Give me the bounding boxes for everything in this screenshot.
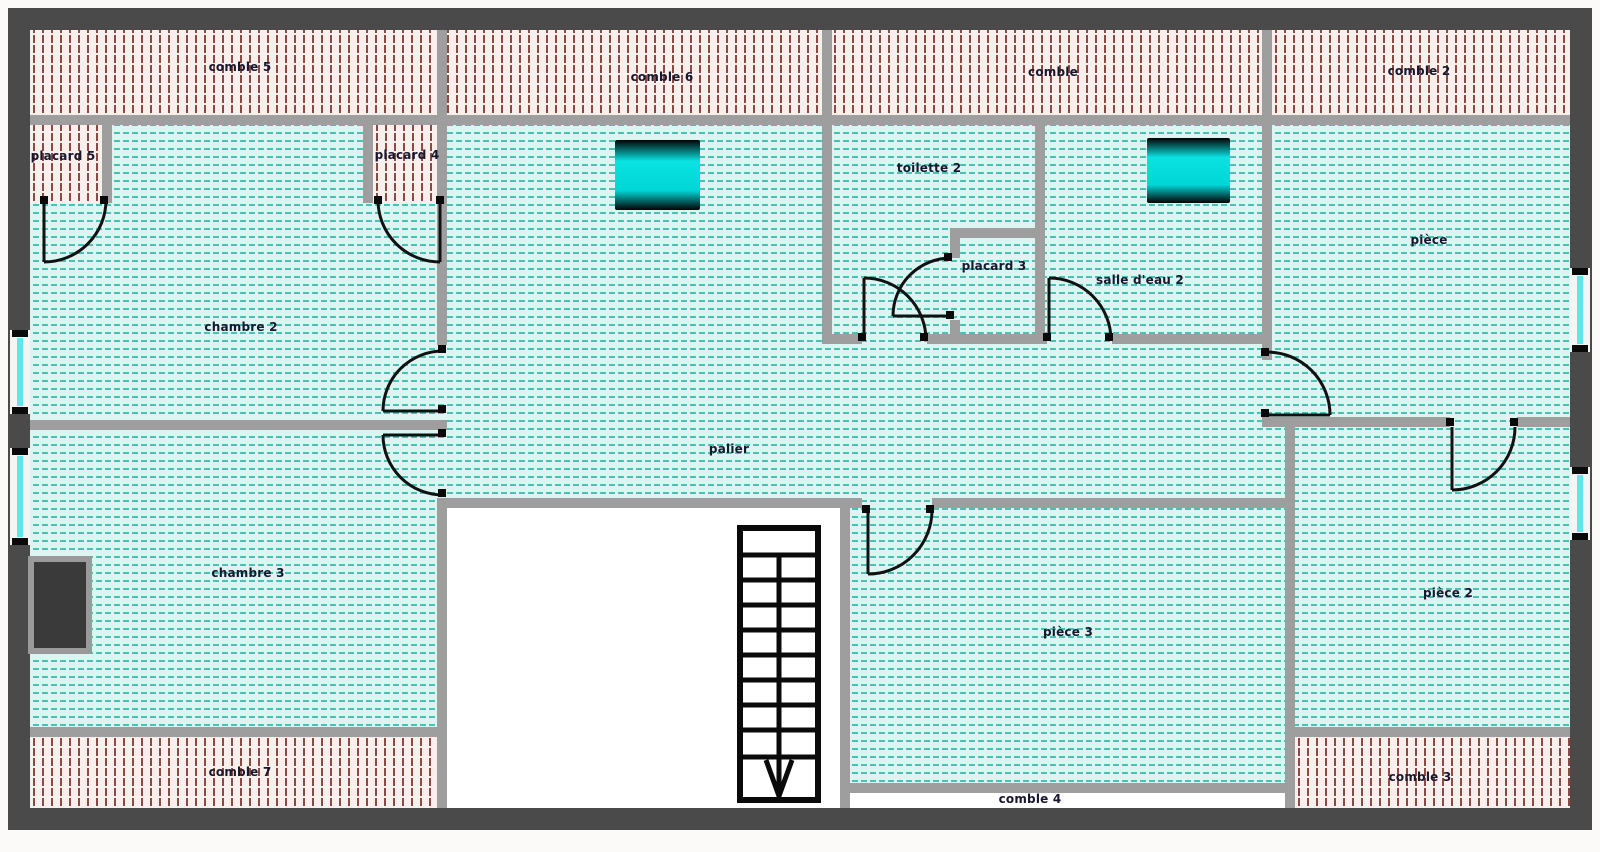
wall-toilette-bottom-b	[927, 334, 1047, 344]
room-label-salledeau2: salle d'eau 2	[1096, 273, 1184, 287]
wall-piece-piece2-b	[1517, 417, 1570, 427]
room-label-comble3: comble 3	[1389, 770, 1452, 784]
room-label-piece3: pièce 3	[1043, 625, 1093, 639]
window-left-lower-glass	[17, 456, 23, 537]
roof-window-icon	[1147, 138, 1230, 203]
window-cap-icon	[12, 448, 28, 455]
roof-window-icon	[615, 140, 700, 210]
room-label-comble2: comble 2	[1388, 64, 1451, 78]
wall-comble5-comble6	[437, 30, 447, 115]
exterior-wall-right	[1570, 8, 1592, 830]
room-label-toilette2: toilette 2	[897, 161, 961, 175]
wall-comble6-comble	[822, 30, 832, 115]
wall-piece2-left	[1285, 427, 1295, 810]
wall-salledeau-bottom	[1112, 334, 1262, 344]
wall-chambre2-chambre3	[30, 420, 447, 430]
room-label-chambre3: chambre 3	[211, 566, 284, 580]
window-cap-icon	[1572, 345, 1588, 352]
comble4-area	[850, 793, 1285, 808]
wall-comble4-top	[850, 783, 1285, 793]
stairwell-area	[447, 508, 840, 808]
window-cap-icon	[12, 330, 28, 337]
wall-comble7-top	[30, 727, 447, 737]
window-cap-icon	[12, 407, 28, 414]
room-label-comble4: comble 4	[999, 792, 1062, 806]
wall-placard3-left-b	[950, 320, 960, 334]
floor-plan: comble 5 comble 6 comble comble 2 placar…	[0, 0, 1600, 852]
wall-placard3-top	[950, 228, 1045, 238]
wall-piece3-top	[932, 498, 1285, 508]
window-right-upper-glass	[1577, 276, 1583, 344]
exterior-wall-top	[8, 8, 1592, 30]
window-cap-icon	[1572, 268, 1588, 275]
window-right-lower-glass	[1577, 475, 1583, 532]
exterior-wall-bottom	[8, 808, 1592, 830]
wall-toilette-left	[822, 115, 832, 344]
placard5-area	[30, 123, 102, 203]
wall-placard4-left	[363, 115, 373, 203]
room-label-comble7: comble 7	[209, 765, 272, 779]
room-label-palier: palier	[709, 442, 749, 456]
wall-piece-piece2-a	[1262, 417, 1450, 427]
wall-stairwell-right	[840, 508, 850, 810]
wall-comble3-top	[1285, 727, 1570, 737]
wall-palier-left-lower	[437, 498, 447, 810]
wall-placard5-right	[102, 115, 112, 203]
wall-piece-left	[1262, 115, 1272, 360]
window-left-upper-glass	[17, 338, 23, 406]
chimney-block-core	[34, 562, 86, 648]
wall-comble-comble2	[1262, 30, 1272, 115]
exterior-wall-left	[8, 8, 30, 830]
room-label-piece2: pièce 2	[1423, 586, 1473, 600]
wall-comble-strip-bottom	[30, 115, 1570, 125]
room-label-placard5: placard 5	[31, 149, 96, 163]
room-label-comble: comble	[1028, 65, 1078, 79]
window-cap-icon	[1572, 467, 1588, 474]
room-label-placard3: placard 3	[962, 259, 1027, 273]
wall-stairwell-top-a	[447, 498, 862, 508]
room-label-placard4: placard 4	[375, 148, 440, 162]
window-cap-icon	[12, 538, 28, 545]
room-label-comble6: comble 6	[631, 70, 694, 84]
room-label-piece: pièce	[1410, 233, 1447, 247]
room-label-chambre2: chambre 2	[204, 320, 277, 334]
placard4-area	[373, 123, 437, 203]
wall-placard3-left-a	[950, 228, 960, 258]
window-cap-icon	[1572, 533, 1588, 540]
wall-toilette-bottom-a	[822, 334, 862, 344]
room-label-comble5: comble 5	[209, 60, 272, 74]
